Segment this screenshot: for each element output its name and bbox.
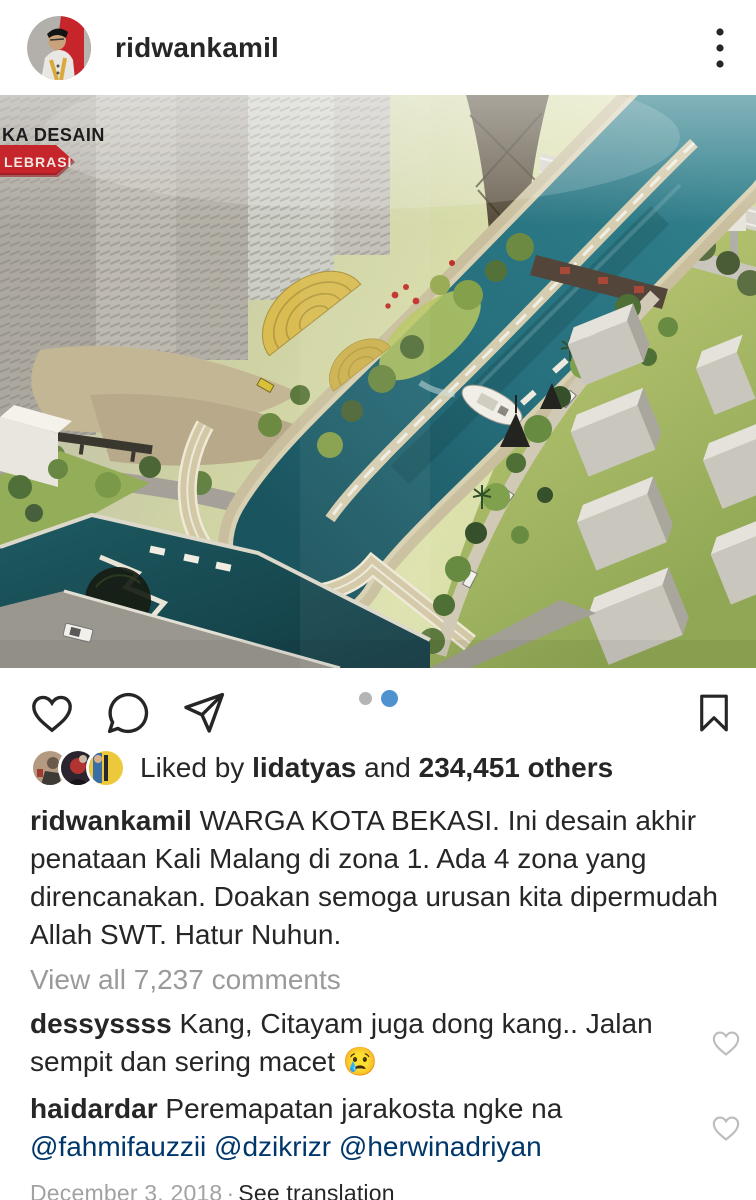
caption-username[interactable]: ridwankamil [30, 805, 192, 836]
comment-1-username[interactable]: dessyssss [30, 1008, 172, 1039]
view-all-comments[interactable]: View all 7,237 comments [0, 954, 756, 996]
likes-others-count[interactable]: 234,451 others [419, 752, 614, 783]
header-username[interactable]: ridwankamil [115, 32, 279, 64]
caption: ridwankamil WARGA KOTA BEKASI. Ini desai… [0, 790, 756, 954]
see-translation-link[interactable]: See translation [238, 1180, 394, 1200]
comment-button[interactable] [104, 689, 152, 737]
likes-conjunction: and [364, 752, 411, 783]
liker-avatar-3 [86, 748, 126, 788]
comment-2-text: haidardar Peremapatan jarakosta ngke na … [30, 1090, 710, 1166]
post-footer: December 3, 2018·See translation [0, 1166, 756, 1200]
likes-row[interactable]: Liked by lidatyas and 234,451 others [0, 744, 756, 790]
action-bar [0, 668, 756, 744]
post-header: ridwankamil [0, 0, 756, 95]
share-button[interactable] [180, 689, 228, 737]
comment-row-1: dessyssss Kang, Citayam juga dong kang..… [0, 996, 756, 1081]
avatar[interactable] [27, 16, 91, 80]
kebab-menu-icon [715, 26, 725, 70]
comment-2-mentions[interactable]: @fahmifauzzii @dzikrizr @herwinadriyan [30, 1131, 542, 1162]
post-media[interactable]: KA DESAIN LEBRASI [0, 95, 756, 668]
comment-1-like-button[interactable] [710, 1027, 742, 1059]
comment-1-text: dessyssss Kang, Citayam juga dong kang..… [30, 1005, 710, 1081]
liker-username[interactable]: lidatyas [252, 752, 356, 783]
footer-separator: · [222, 1180, 238, 1200]
post-photo-rendering: KA DESAIN LEBRASI [0, 95, 756, 668]
photo-ribbon-label: LEBRASI [4, 154, 72, 170]
post-date: December 3, 2018 [30, 1180, 222, 1200]
liker-avatars [30, 748, 126, 788]
comment-2-username[interactable]: haidardar [30, 1093, 158, 1124]
comment-row-2: haidardar Peremapatan jarakosta ngke na … [0, 1081, 756, 1166]
carousel-dot-1 [359, 692, 372, 705]
more-options-button[interactable] [700, 21, 740, 75]
comment-2-like-button[interactable] [710, 1112, 742, 1144]
likes-prefix: Liked by [140, 752, 244, 783]
carousel-dot-2 [381, 690, 398, 707]
like-button[interactable] [28, 689, 76, 737]
comment-2-body: Peremapatan jarakosta ngke na [165, 1093, 562, 1124]
likes-text: Liked by lidatyas and 234,451 others [140, 752, 613, 784]
instagram-post: ridwankamil [0, 0, 756, 1200]
avatar-image [27, 16, 91, 80]
photo-title-label: KA DESAIN [2, 125, 105, 145]
save-button[interactable] [692, 687, 736, 739]
